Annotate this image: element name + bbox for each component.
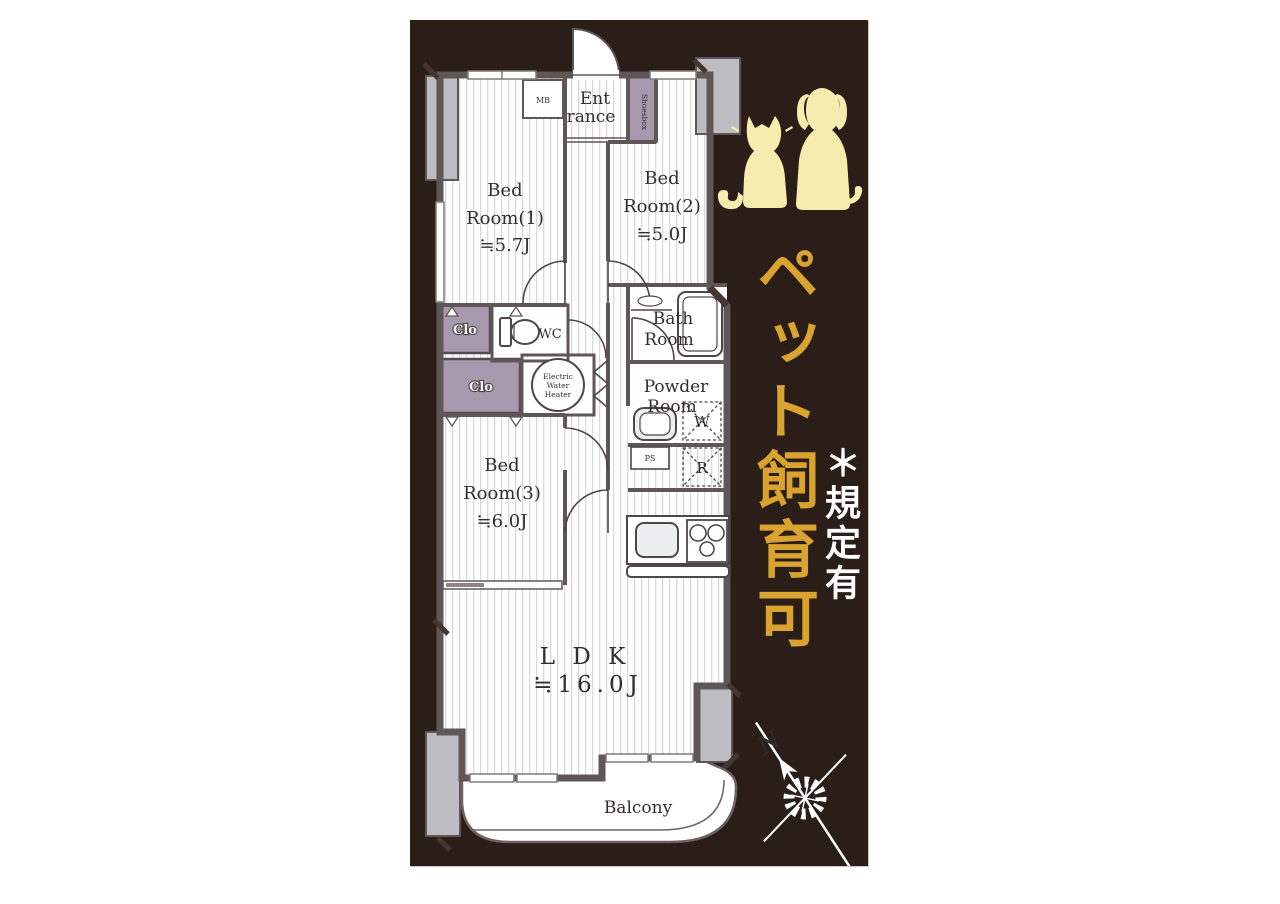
bedroom3-label2: Room(3): [463, 483, 541, 504]
refrigerator-label: R: [696, 459, 708, 477]
pet-allowed-text: ペット飼育可: [740, 218, 824, 678]
powder-label2: Room: [647, 397, 696, 417]
bedroom1-size: ≒5.7J: [480, 235, 531, 256]
entrance-label2: rance: [567, 107, 616, 127]
bedroom3-size: ≒6.0J: [477, 511, 528, 532]
pipe-space-label: PS: [645, 454, 656, 463]
ldk-label: L D K: [540, 644, 631, 670]
bath-label2: Room: [644, 330, 693, 350]
entrance-label: Ent: [580, 89, 610, 109]
water-heater-label1: Electric: [543, 372, 573, 381]
kitchen-counter: [627, 516, 729, 577]
balcony-label: Balcony: [604, 798, 673, 818]
bedroom1-label: Bed: [487, 180, 522, 201]
toilet-icon: [500, 318, 539, 346]
bath-label: Bath: [653, 309, 693, 329]
listing-panel: Bed Room(1) ≒5.7J Bed Room(2) ≒5.0J Bed …: [410, 20, 868, 866]
bedroom1-label2: Room(1): [466, 208, 544, 229]
closet1-label: Clo: [453, 323, 477, 338]
shoesbox-label: Shoesbox: [640, 94, 649, 131]
wc-label: WC: [538, 327, 561, 342]
bedroom2-size: ≒5.0J: [637, 224, 688, 245]
entrance-door-arc: [573, 29, 619, 75]
dog-silhouette-icon: [796, 88, 862, 210]
water-heater-label3: Heater: [545, 390, 572, 399]
meter-box-label: MB: [536, 96, 550, 105]
bedroom2-label: Bed: [644, 168, 679, 189]
stove-icon: [687, 520, 727, 562]
compass-north-label: N: [752, 725, 787, 761]
washer-label: W: [694, 413, 710, 431]
water-heater-label2: Water: [547, 381, 570, 390]
ldk-size: ≒16.0J: [533, 672, 643, 698]
bedroom3-label: Bed: [484, 455, 519, 476]
closet2-label: Clo: [469, 380, 493, 395]
sliding-door: [443, 581, 562, 589]
pet-rule-note-text: ＊規定有: [818, 444, 866, 664]
page-background: Bed Room(1) ≒5.7J Bed Room(2) ≒5.0J Bed …: [0, 0, 1280, 904]
kitchen-sink-icon: [636, 523, 678, 557]
powder-label: Powder: [644, 377, 709, 397]
bedroom2-label2: Room(2): [623, 196, 701, 217]
